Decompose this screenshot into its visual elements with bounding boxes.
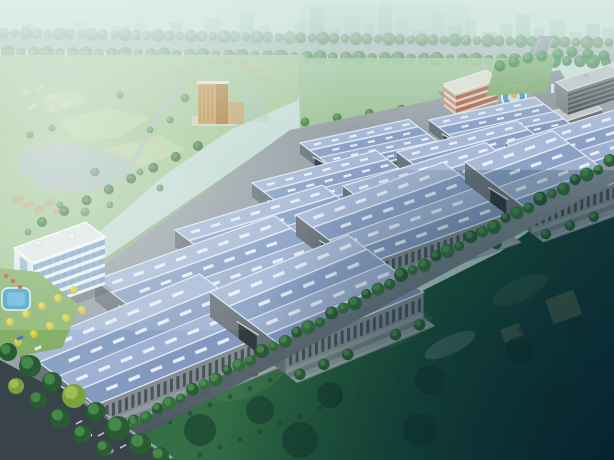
tree: [129, 433, 151, 455]
tree: [199, 379, 210, 390]
window-slat: [119, 399, 122, 413]
window-slat: [183, 373, 186, 387]
tree: [62, 384, 86, 408]
architectural-rendering: [0, 0, 614, 460]
window-slat: [176, 376, 179, 390]
tree: [152, 403, 163, 414]
window-slat: [189, 370, 192, 384]
window-slat: [112, 402, 115, 416]
window-slat: [131, 394, 134, 408]
window-slat: [138, 391, 141, 405]
tree: [29, 391, 47, 409]
window-slat: [125, 397, 128, 411]
window-slat: [202, 365, 205, 379]
tree: [8, 378, 24, 394]
window-slat: [151, 386, 154, 400]
tree: [73, 425, 91, 443]
tree: [86, 402, 106, 422]
tree-clump: [184, 414, 216, 446]
tree: [140, 411, 153, 424]
window-slat: [215, 360, 218, 374]
tree: [162, 397, 176, 411]
window-slat: [170, 378, 173, 392]
tree: [42, 372, 62, 392]
tree: [176, 394, 186, 404]
field-tree: [198, 453, 203, 458]
field-tree: [188, 411, 193, 416]
tree: [96, 440, 112, 456]
tree: [106, 416, 130, 440]
tree: [209, 373, 223, 387]
tree: [19, 355, 41, 377]
tree: [30, 330, 38, 338]
window-slat: [157, 383, 160, 397]
window-slat: [164, 381, 167, 395]
window-slat: [144, 389, 147, 403]
tree: [186, 383, 199, 396]
tree: [50, 408, 70, 428]
field-tree: [208, 403, 213, 408]
industrial-park-scene: [0, 0, 614, 460]
corner-dark-haze: [230, 170, 614, 460]
tree: [129, 418, 139, 428]
window-slat: [196, 368, 199, 382]
field-tree: [218, 445, 223, 450]
